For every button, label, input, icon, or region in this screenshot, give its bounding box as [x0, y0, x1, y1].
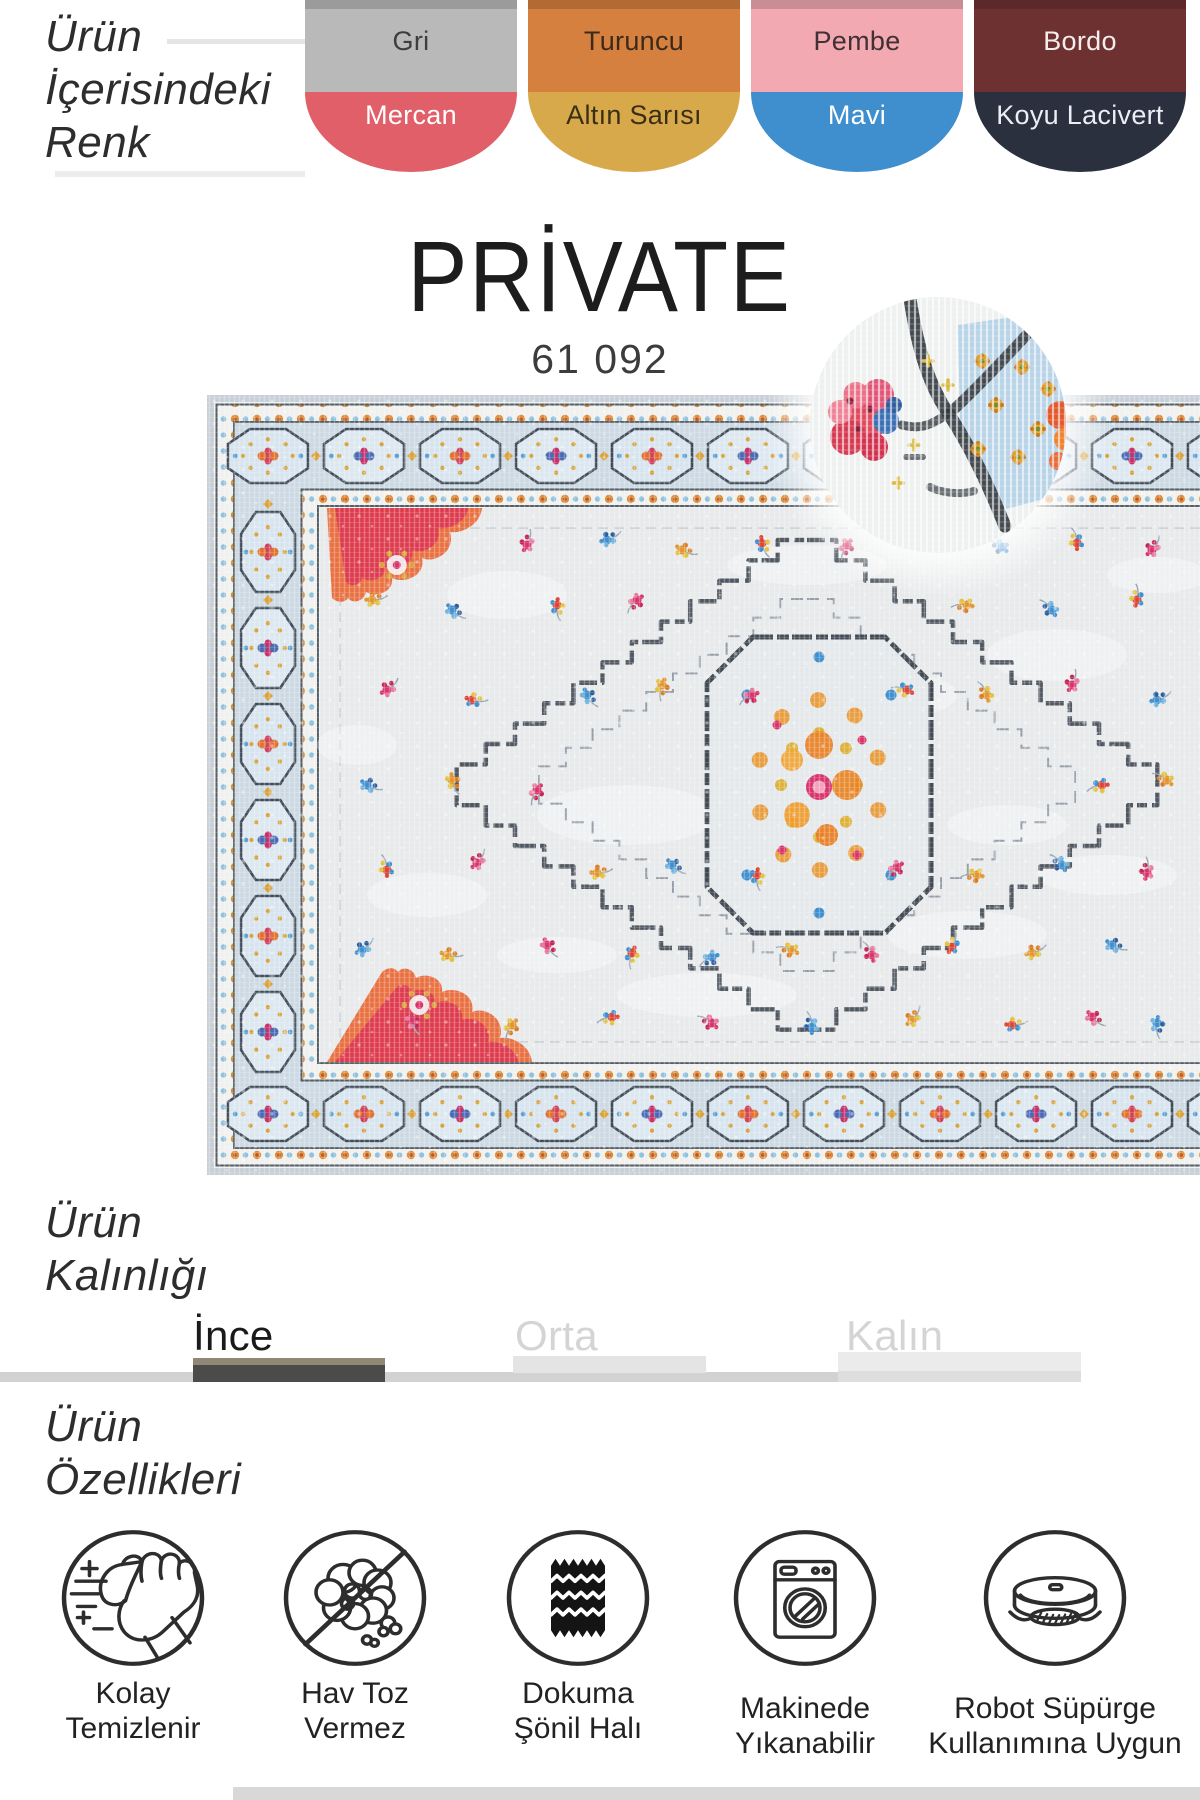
heading-line: Ürün [45, 1400, 241, 1453]
heading-connector-line [167, 39, 305, 44]
thickness-bar-orta [513, 1356, 706, 1373]
thickness-section-heading: Ürün Kalınlığı [45, 1196, 208, 1302]
machine-washable-icon [730, 1528, 880, 1668]
capsule-top-shade [751, 0, 963, 9]
texture-detail-bubble [810, 297, 1066, 553]
color-label: Turuncu [528, 26, 740, 57]
product-infographic-page: { "palette_section": { "heading_lines": … [0, 0, 1200, 1800]
color-capsule-gri-mercan: Gri Mercan [305, 0, 517, 172]
bottom-divider-bar [233, 1787, 1200, 1800]
heading-line: İçerisindeki [45, 63, 271, 116]
robot-vacuum-icon [980, 1528, 1130, 1668]
color-label: Mavi [751, 100, 963, 131]
color-label: Gri [305, 26, 517, 57]
heading-line: Kalınlığı [45, 1249, 208, 1302]
color-section-heading: Ürün İçerisindeki Renk [45, 10, 271, 169]
color-label: Bordo [974, 26, 1186, 57]
color-capsule-turuncu-altin: Turuncu Altın Sarısı [528, 0, 740, 172]
color-label: Koyu Lacivert [974, 100, 1186, 131]
features-section-heading: Ürün Özellikleri [45, 1400, 241, 1506]
woven-chenille-icon [503, 1528, 653, 1668]
easy-clean-icon [58, 1528, 208, 1668]
heading-line: Ürün [45, 10, 271, 63]
no-lint-icon [280, 1528, 430, 1668]
capsule-top-shade [974, 0, 1186, 9]
capsule-top-shade [305, 0, 517, 9]
color-label: Mercan [305, 100, 517, 131]
thickness-bar-kalin [838, 1352, 1081, 1382]
color-capsule-bordo-lacivert: Bordo Koyu Lacivert [974, 0, 1186, 172]
heading-line: Ürün [45, 1196, 208, 1249]
color-label: Altın Sarısı [528, 100, 740, 131]
thickness-bar-ince-selected [193, 1358, 385, 1382]
thickness-option-orta[interactable]: Orta [515, 1312, 598, 1360]
capsule-top-shade [528, 0, 740, 9]
color-capsule-pembe-mavi: Pembe Mavi [751, 0, 963, 172]
thickness-option-ince[interactable]: İnce [193, 1312, 274, 1360]
feature-label-robot-vacuum: Robot SüpürgeKullanımına Uygun [895, 1691, 1200, 1761]
heading-line: Özellikleri [45, 1453, 241, 1506]
heading-line: Renk [45, 116, 271, 169]
color-label: Pembe [751, 26, 963, 57]
heading-underline [55, 171, 305, 177]
